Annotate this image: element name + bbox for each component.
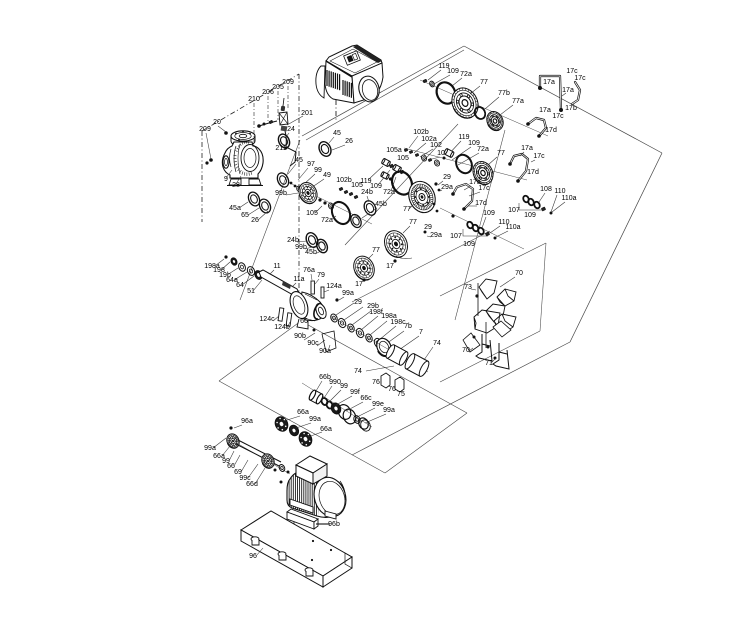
svg-text:99b: 99b [275, 190, 287, 197]
svg-text:205: 205 [272, 84, 284, 91]
svg-text:76: 76 [388, 386, 396, 393]
svg-text:65: 65 [241, 212, 249, 219]
svg-text:102: 102 [430, 142, 442, 149]
svg-text:29a: 29a [430, 232, 442, 239]
svg-text:24b: 24b [361, 189, 373, 196]
svg-text:76a: 76a [303, 267, 315, 274]
svg-text:206: 206 [262, 89, 274, 96]
svg-text:45: 45 [295, 157, 303, 164]
svg-text:77: 77 [372, 247, 380, 254]
svg-text:17d: 17d [545, 127, 557, 134]
svg-text:17c: 17c [478, 185, 490, 192]
svg-text:17a: 17a [543, 79, 555, 86]
svg-text:76: 76 [372, 379, 380, 386]
svg-text:17a: 17a [539, 107, 551, 114]
svg-text:77b: 77b [498, 90, 510, 97]
svg-text:110a: 110a [505, 224, 520, 231]
svg-text:29: 29 [443, 174, 451, 181]
svg-text:17c: 17c [574, 75, 586, 82]
svg-text:107: 107 [450, 233, 462, 240]
svg-text:99a: 99a [204, 445, 216, 452]
svg-text:17c: 17c [533, 153, 545, 160]
svg-text:77a: 77a [512, 98, 524, 105]
svg-text:17c: 17c [566, 68, 578, 75]
svg-text:74: 74 [433, 340, 441, 347]
svg-text:109: 109 [524, 212, 536, 219]
svg-text:102b: 102b [413, 129, 429, 136]
svg-text:7: 7 [419, 329, 423, 336]
svg-text:99a: 99a [309, 416, 321, 423]
svg-text:71: 71 [485, 360, 493, 367]
svg-text:17: 17 [355, 281, 363, 288]
svg-text:99a: 99a [342, 290, 354, 297]
svg-text:124a: 124a [326, 283, 342, 290]
svg-text:20: 20 [213, 119, 221, 126]
svg-text:96: 96 [249, 553, 257, 560]
svg-text:105a: 105a [386, 147, 402, 154]
svg-text:77: 77 [497, 150, 505, 157]
svg-text:64: 64 [236, 282, 244, 289]
svg-text:66a: 66a [297, 409, 309, 416]
svg-text:29a: 29a [441, 184, 453, 191]
svg-text:109: 109 [370, 183, 382, 190]
svg-text:75: 75 [397, 391, 405, 398]
svg-text:110: 110 [554, 188, 565, 195]
svg-text:17d: 17d [527, 169, 539, 176]
svg-text:7b: 7b [404, 323, 412, 330]
svg-text:9: 9 [224, 176, 228, 183]
svg-text:90b: 90b [294, 333, 306, 340]
svg-text:66c: 66c [360, 395, 372, 402]
svg-text:11: 11 [273, 263, 280, 270]
svg-text:99f: 99f [350, 389, 360, 396]
svg-text:72a: 72a [321, 217, 333, 224]
svg-text:51: 51 [247, 288, 255, 295]
svg-text:29: 29 [354, 299, 362, 306]
svg-text:11a: 11a [293, 276, 304, 283]
svg-text:17c: 17c [552, 113, 564, 120]
svg-text:17a: 17a [521, 145, 533, 152]
svg-text:77: 77 [409, 219, 417, 226]
svg-text:45b: 45b [305, 249, 317, 256]
svg-text:49: 49 [323, 172, 331, 179]
svg-text:17b: 17b [565, 105, 577, 112]
svg-text:26: 26 [345, 138, 353, 145]
svg-text:109: 109 [483, 210, 495, 217]
svg-text:79: 79 [317, 272, 325, 279]
svg-text:99: 99 [314, 167, 322, 174]
svg-text:109: 109 [447, 68, 459, 75]
svg-text:66: 66 [300, 318, 308, 325]
svg-text:45a: 45a [229, 205, 241, 212]
svg-text:96a: 96a [241, 418, 253, 425]
svg-text:17a: 17a [562, 87, 574, 94]
svg-text:108: 108 [540, 186, 552, 193]
svg-text:72a: 72a [383, 189, 395, 196]
svg-text:29: 29 [424, 224, 432, 231]
svg-text:74: 74 [354, 368, 362, 375]
svg-text:77: 77 [403, 206, 411, 213]
svg-text:102b: 102b [336, 177, 352, 184]
svg-text:107: 107 [508, 207, 520, 214]
svg-text:109: 109 [463, 241, 475, 248]
svg-text:28: 28 [232, 182, 240, 189]
svg-text:105: 105 [306, 210, 318, 217]
svg-text:73: 73 [464, 284, 472, 291]
svg-text:110a: 110a [561, 195, 576, 202]
svg-text:90a: 90a [319, 348, 331, 355]
svg-text:26: 26 [251, 217, 259, 224]
svg-text:209: 209 [199, 126, 211, 133]
svg-text:99: 99 [340, 383, 348, 390]
svg-text:72a: 72a [477, 146, 489, 153]
svg-text:70: 70 [515, 270, 523, 277]
svg-text:70: 70 [462, 347, 470, 354]
svg-text:72a: 72a [460, 71, 472, 78]
svg-text:124c: 124c [259, 316, 275, 323]
svg-text:210: 210 [248, 96, 260, 103]
svg-text:99a: 99a [383, 407, 395, 414]
svg-text:77: 77 [480, 79, 488, 86]
svg-text:24: 24 [287, 126, 295, 133]
svg-text:45b: 45b [375, 201, 387, 208]
svg-text:24b: 24b [287, 237, 299, 244]
svg-text:105: 105 [397, 155, 409, 162]
svg-text:209: 209 [282, 79, 294, 86]
svg-text:17: 17 [386, 263, 394, 270]
svg-text:45: 45 [333, 130, 341, 137]
